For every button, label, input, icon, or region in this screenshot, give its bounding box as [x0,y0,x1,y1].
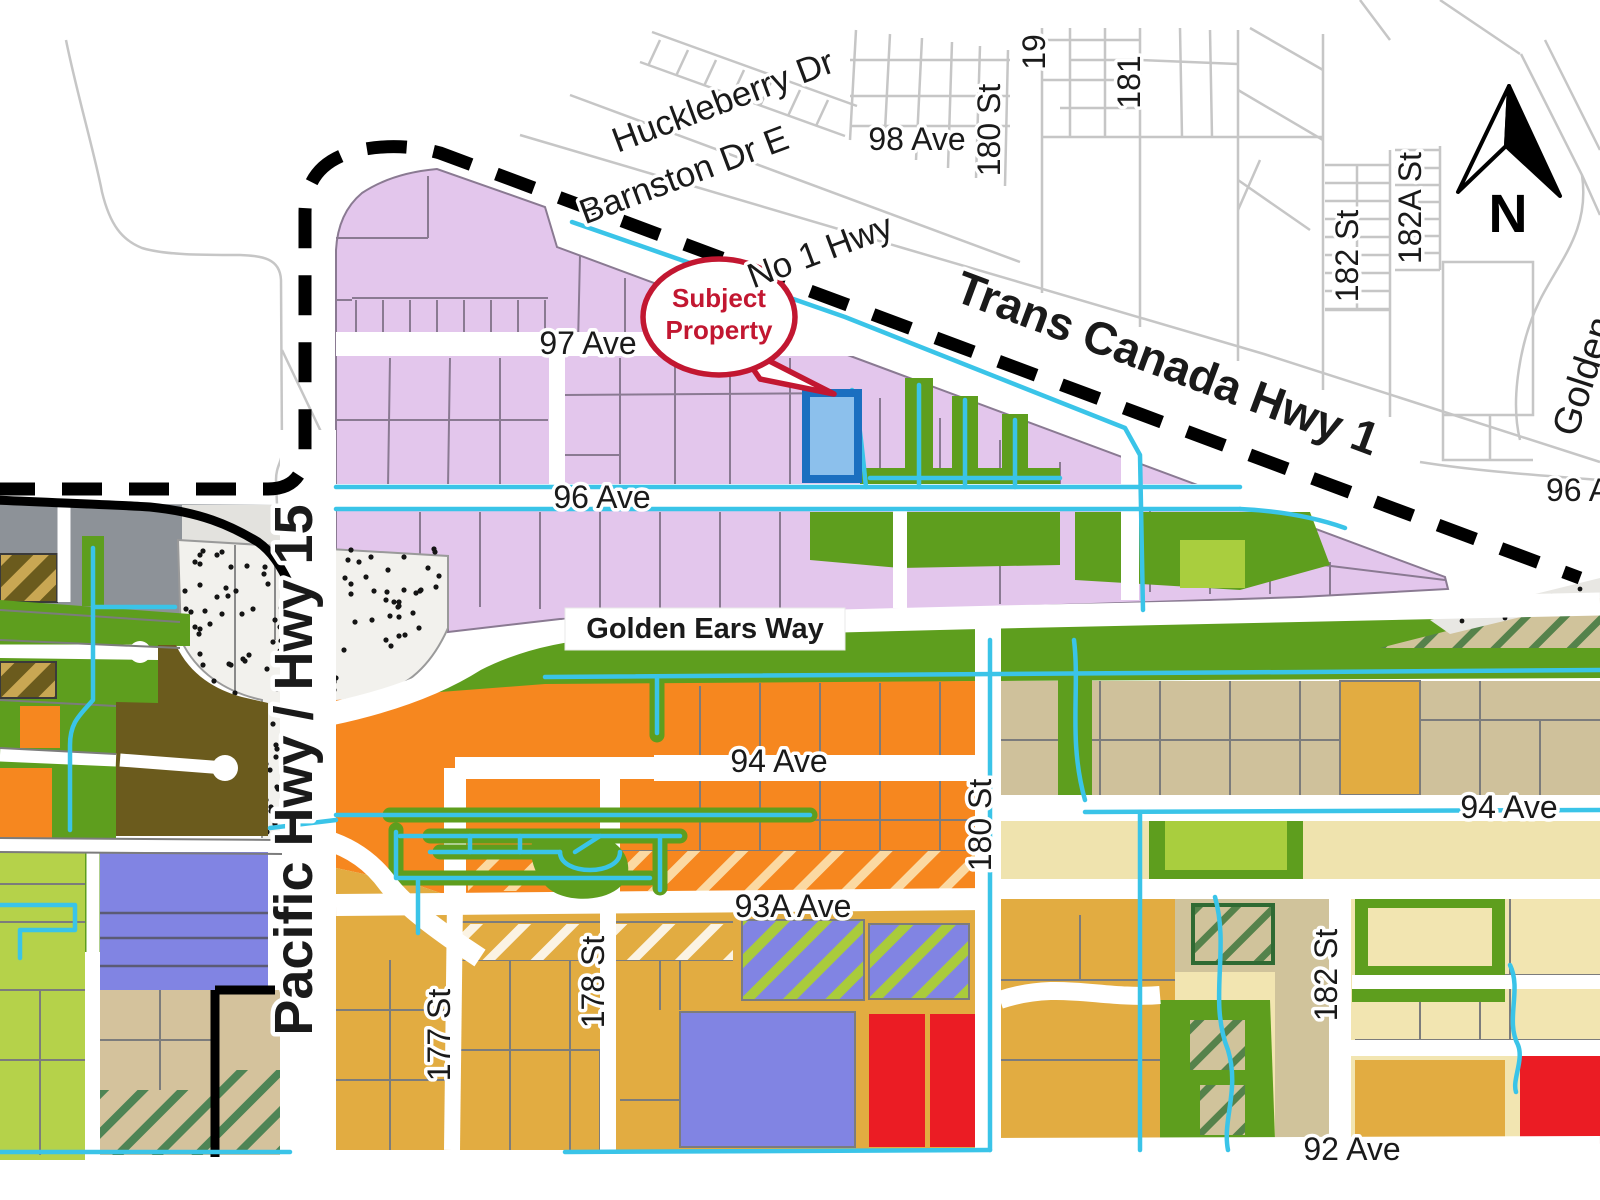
svg-text:180 St: 180 St [962,779,998,872]
svg-text:94 Ave: 94 Ave [1460,789,1557,825]
svg-text:96 A: 96 A [1546,472,1600,508]
svg-text:181: 181 [1111,55,1147,108]
svg-text:182 St: 182 St [1308,929,1344,1022]
svg-text:Property: Property [666,315,773,345]
svg-text:98 Ave: 98 Ave [868,121,965,157]
svg-text:182 St: 182 St [1329,210,1365,303]
svg-text:93A Ave: 93A Ave [735,888,852,924]
svg-text:Pacific Hwy / Hwy 15: Pacific Hwy / Hwy 15 [264,504,324,1035]
svg-text:N: N [1489,184,1528,244]
svg-text:182A St: 182A St [1392,152,1428,264]
svg-text:96 Ave: 96 Ave [553,479,650,515]
svg-text:94 Ave: 94 Ave [730,743,827,779]
svg-text:178 St: 178 St [575,936,611,1029]
svg-text:Golden Ears Way: Golden Ears Way [586,613,823,645]
svg-text:19: 19 [1016,34,1052,70]
svg-text:97 Ave: 97 Ave [539,325,636,361]
svg-text:180 St: 180 St [971,84,1007,177]
svg-text:92 Ave: 92 Ave [1303,1131,1400,1167]
svg-text:177 St: 177 St [421,989,457,1082]
